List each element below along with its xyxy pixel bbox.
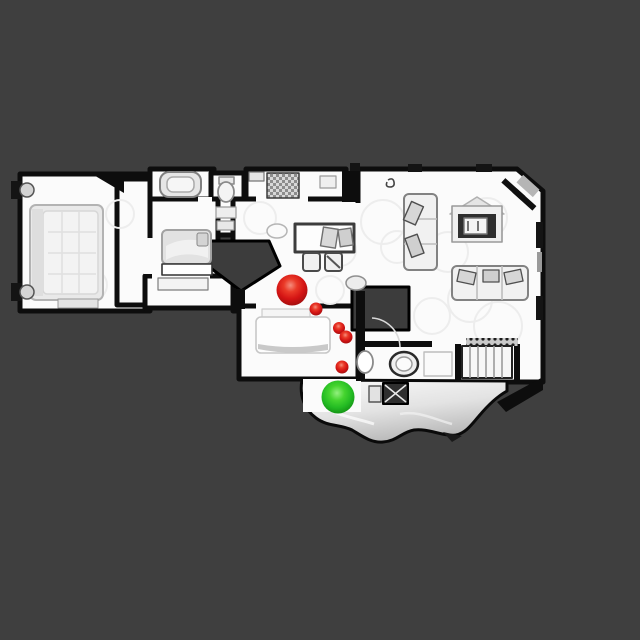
- path-point-sphere[interactable]: [335, 360, 348, 373]
- start-sphere[interactable]: [276, 274, 307, 305]
- path-point-sphere[interactable]: [340, 330, 353, 343]
- waypoint-layer: [0, 0, 640, 640]
- path-point-sphere[interactable]: [309, 302, 322, 315]
- scene-viewport[interactable]: [0, 0, 640, 640]
- goal-sphere[interactable]: [321, 380, 354, 413]
